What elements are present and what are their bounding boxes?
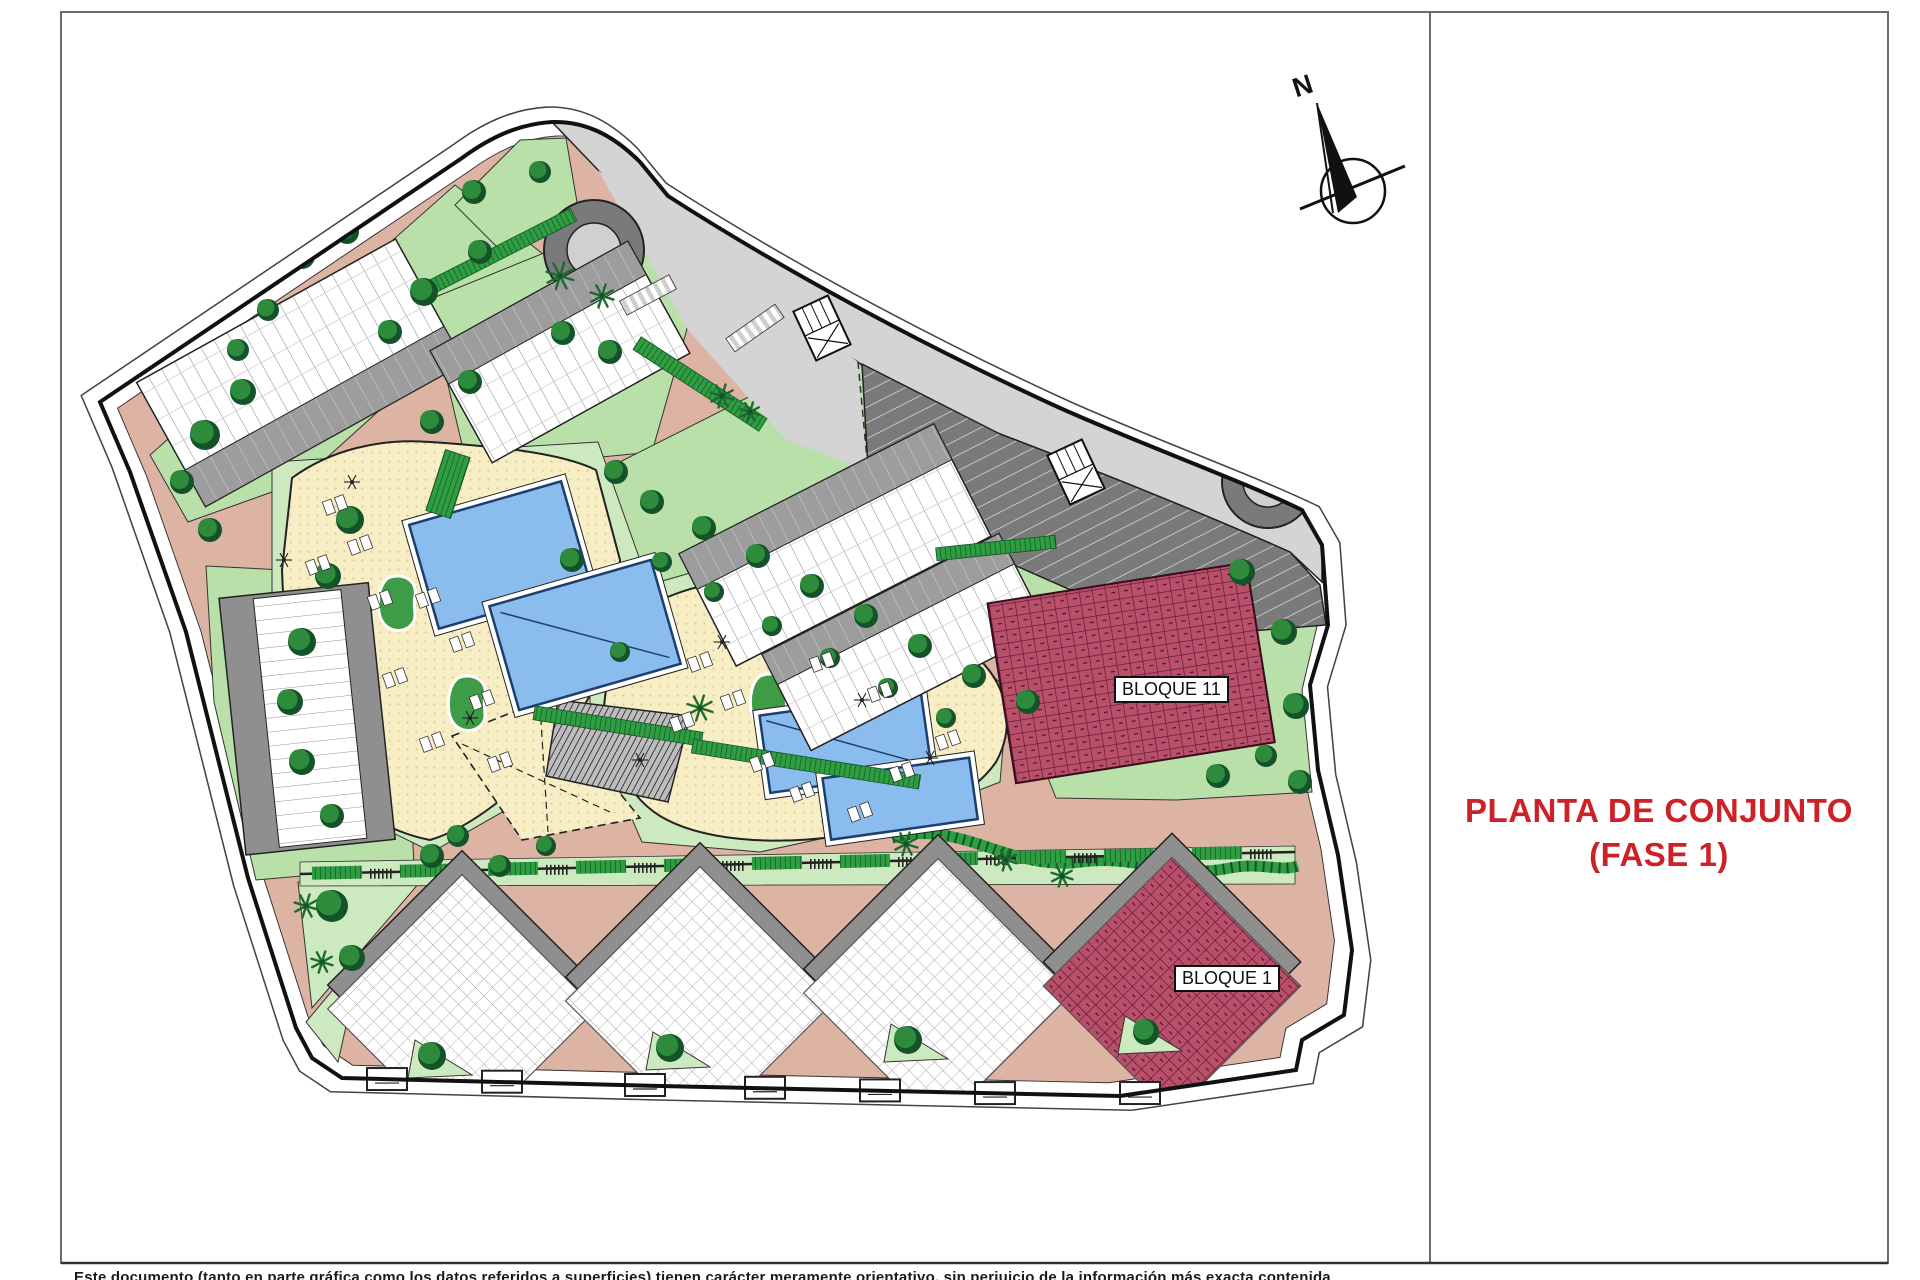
rowhouses-west bbox=[219, 583, 395, 855]
tree-icon bbox=[170, 470, 189, 489]
tree-icon bbox=[320, 804, 339, 823]
compass-north-label: N bbox=[1289, 69, 1317, 104]
hedge-icon bbox=[1192, 846, 1242, 860]
tree-icon bbox=[458, 370, 477, 389]
tree-icon bbox=[560, 548, 579, 567]
tree-icon bbox=[936, 708, 952, 724]
tree-icon bbox=[1271, 619, 1291, 639]
drawing-title: PLANTA DE CONJUNTO (FASE 1) bbox=[1432, 789, 1886, 876]
tree-icon bbox=[1283, 693, 1303, 713]
drawing-title-line2: (FASE 1) bbox=[1432, 833, 1886, 877]
tree-icon bbox=[462, 180, 481, 199]
tree-icon bbox=[489, 855, 506, 872]
tree-icon bbox=[468, 240, 487, 259]
hedge-icon bbox=[312, 866, 362, 880]
tree-icon bbox=[962, 664, 981, 683]
tree-icon bbox=[1016, 690, 1035, 709]
tree-icon bbox=[190, 420, 213, 443]
tree-icon bbox=[1229, 559, 1249, 579]
tree-icon bbox=[420, 410, 439, 429]
tree-icon bbox=[800, 574, 819, 593]
tree-icon bbox=[529, 161, 546, 178]
tree-icon bbox=[339, 945, 359, 965]
tree-icon bbox=[762, 616, 778, 632]
site-plan-drawing: N bbox=[0, 0, 1920, 1280]
tree-icon bbox=[610, 642, 626, 658]
tree-icon bbox=[604, 460, 623, 479]
tree-icon bbox=[198, 518, 217, 537]
tree-icon bbox=[227, 339, 244, 356]
tree-icon bbox=[692, 516, 711, 535]
tree-icon bbox=[704, 582, 720, 598]
tree-icon bbox=[1255, 745, 1272, 762]
tree-icon bbox=[640, 490, 659, 509]
drawing-title-line1: PLANTA DE CONJUNTO bbox=[1432, 789, 1886, 833]
plan-sheet: N PLANTA DE CONJUNTO (FASE 1) BLOQUE 11 … bbox=[0, 0, 1920, 1280]
bloque-11-label: BLOQUE 11 bbox=[1114, 676, 1229, 703]
tree-icon bbox=[1133, 1019, 1153, 1039]
footer-disclaimer: Este documento (tanto en parte gráfica c… bbox=[74, 1269, 1331, 1280]
tree-icon bbox=[257, 299, 274, 316]
tree-icon bbox=[447, 825, 464, 842]
tree-icon bbox=[316, 890, 341, 915]
tree-icon bbox=[230, 379, 250, 399]
hedge-icon bbox=[840, 854, 890, 868]
tree-icon bbox=[598, 340, 617, 359]
tree-icon bbox=[378, 320, 397, 339]
tree-icon bbox=[289, 749, 309, 769]
tree-icon bbox=[908, 634, 927, 653]
tree-icon bbox=[1288, 770, 1307, 789]
hedge-icon bbox=[576, 860, 626, 874]
tree-icon bbox=[1206, 764, 1225, 783]
tree-icon bbox=[551, 321, 570, 340]
tree-icon bbox=[277, 689, 297, 709]
hedge-icon bbox=[1016, 850, 1066, 864]
bloque-1-label: BLOQUE 1 bbox=[1174, 965, 1280, 992]
tree-icon bbox=[656, 1034, 678, 1056]
tree-icon bbox=[854, 604, 873, 623]
tree-icon bbox=[894, 1026, 916, 1048]
tree-icon bbox=[420, 844, 439, 863]
tree-icon bbox=[746, 544, 765, 563]
tree-icon bbox=[536, 836, 552, 852]
tree-icon bbox=[418, 1042, 440, 1064]
tree-icon bbox=[652, 552, 668, 568]
north-compass: N bbox=[1289, 69, 1405, 223]
hedge-icon bbox=[752, 856, 802, 870]
tree-icon bbox=[410, 278, 432, 300]
tree-icon bbox=[288, 628, 310, 650]
